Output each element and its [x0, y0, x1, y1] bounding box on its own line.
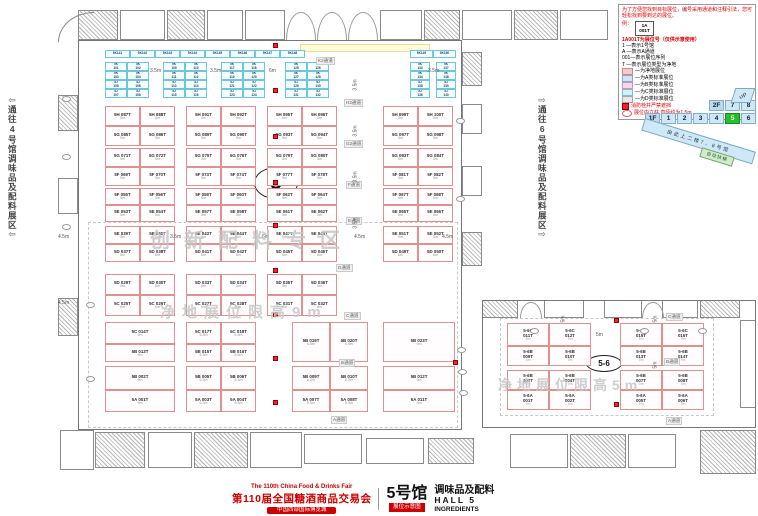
booth[interactable]: 5G 085T5m: [105, 126, 140, 146]
booth[interactable]: 5G 076T5m: [221, 148, 256, 167]
booth-id: 5J 124: [251, 90, 256, 97]
booth[interactable]: 5B 015T6.5m: [186, 344, 221, 362]
booth-id: 5K146: [238, 52, 247, 56]
booth[interactable]: 5B 006T6.5m: [221, 366, 256, 390]
booth[interactable]: 5E 062T5m: [302, 205, 337, 222]
booth[interactable]: 5K150: [433, 50, 456, 58]
booth-size: 6.5m: [235, 354, 243, 358]
booth[interactable]: 5-6C 016T7m: [662, 323, 704, 346]
booth-id: 5K144: [188, 52, 197, 56]
booth[interactable]: 5J 124: [243, 89, 265, 98]
booth[interactable]: 5J 122: [243, 80, 265, 89]
room: [424, 10, 460, 40]
booth[interactable]: 5K 128: [307, 71, 329, 80]
measure-label: 5m: [652, 316, 658, 323]
room: [570, 434, 626, 468]
aisle-label: A通道: [331, 416, 347, 424]
fair-name-en: The 110th China Food & Drinks Fair: [251, 484, 352, 490]
booth-size: 6.5m: [345, 379, 353, 383]
booth-size: 6m: [317, 254, 322, 258]
room: [194, 432, 248, 468]
booth[interactable]: 5-6C 012T7m: [549, 323, 591, 346]
pillar: [456, 118, 465, 124]
booth[interactable]: 5J 135: [410, 80, 430, 89]
booth[interactable]: 5K 111: [163, 71, 185, 80]
booth[interactable]: 5F 078T5m: [302, 167, 337, 186]
booth[interactable]: 5K 117: [221, 62, 243, 71]
booth-id: 5K 120: [251, 72, 256, 79]
booth[interactable]: 5K 125: [285, 62, 307, 71]
booth[interactable]: 5A 001T9m: [105, 390, 175, 412]
booth-size: 6m: [120, 254, 125, 258]
booth-id: 5J 135: [417, 81, 422, 88]
booth[interactable]: 5-6C 011T7m: [507, 323, 549, 346]
booth[interactable]: 5K144: [180, 50, 205, 58]
booth[interactable]: 5D 033T5m: [186, 274, 221, 295]
booth[interactable]: 5-6B 010T7m: [549, 346, 591, 366]
booth[interactable]: 5E 061T5m: [267, 205, 302, 222]
booth[interactable]: 5D 030T5m: [140, 274, 175, 295]
booth-id: 5K143: [163, 52, 172, 56]
booth-size: 5m: [398, 177, 403, 181]
booth[interactable]: 5K 133: [410, 62, 430, 71]
booth[interactable]: 5J 113: [163, 80, 185, 89]
pillar: [458, 369, 467, 375]
room: [250, 432, 302, 468]
pillar: [459, 390, 468, 396]
booth[interactable]: 5B 005T6.5m: [186, 366, 221, 390]
legend-key-label: —为净地展位: [635, 68, 665, 75]
booth-size: 6m: [398, 254, 403, 258]
booth-size: 7m: [681, 403, 686, 407]
room: [462, 166, 482, 196]
booth-size: 5m: [120, 285, 125, 289]
booth[interactable]: 5F 069T5m: [105, 167, 140, 186]
booth[interactable]: 5F 064T5m: [302, 188, 337, 205]
booth[interactable]: 5B 002T9m: [105, 366, 175, 390]
booth-size: 5m: [282, 197, 287, 201]
booth[interactable]: 5F 073T5m: [186, 167, 221, 186]
booth-size: 6.5m: [200, 402, 208, 406]
booth[interactable]: 5J 108: [127, 89, 149, 98]
booth[interactable]: 5B 010T6.5m: [330, 366, 368, 390]
hall-nav-2[interactable]: 2: [677, 113, 692, 124]
booth-size: 6.5m: [307, 343, 315, 347]
booth-size: 7m: [568, 338, 573, 342]
fire-hydrant-marker: [273, 356, 278, 361]
hall-name-en: HALL 5: [434, 496, 494, 505]
booth[interactable]: 5C 014T9m: [105, 322, 175, 344]
hall-nav-1[interactable]: 1: [661, 113, 676, 124]
room: [462, 10, 512, 40]
room: [366, 438, 424, 464]
booth[interactable]: 5F 070T5m: [140, 167, 175, 186]
booth-id: 5K149: [417, 52, 426, 56]
booth[interactable]: 5H 091T5m: [186, 106, 221, 126]
measure-label: 6m: [269, 68, 276, 74]
booth[interactable]: 5K146: [230, 50, 255, 58]
booth-id: 5K 109: [171, 63, 176, 70]
booth[interactable]: 5D 037T6m: [105, 244, 140, 262]
booth[interactable]: 5K 120: [243, 71, 265, 80]
booth[interactable]: 5J 136: [410, 89, 430, 98]
booth-size: 5m: [155, 158, 160, 162]
booth[interactable]: 5H 092T5m: [221, 106, 256, 126]
booth[interactable]: 5F 059T5m: [186, 188, 221, 205]
arrow-icon: ⇦: [8, 230, 16, 239]
booth[interactable]: 5E 053T5m: [105, 205, 140, 222]
booth[interactable]: 5K 103: [105, 71, 127, 80]
booth[interactable]: 5J 139: [436, 80, 456, 89]
booth[interactable]: 5D 049T6m: [383, 244, 418, 262]
booth[interactable]: 5J 106: [127, 80, 149, 89]
legend-color-swatch: [622, 75, 633, 82]
booth-size: 5m: [398, 236, 403, 240]
room: [304, 434, 362, 464]
booth[interactable]: 5B 020T6.5m: [330, 322, 368, 362]
fire-hydrant-marker: [273, 268, 278, 273]
legend-key-row: —为净地展位: [622, 68, 752, 75]
booth[interactable]: 5B 009T6.5m: [292, 366, 330, 390]
pillar: [86, 376, 95, 382]
booth-size: 5m: [155, 285, 160, 289]
hall-nav-3[interactable]: 3: [693, 113, 708, 124]
map-badge: 展位示意图: [389, 503, 425, 511]
booth-size: 5m: [433, 137, 438, 141]
booth-size: 6.5m: [235, 402, 243, 406]
booth[interactable]: 5A 004T6.5m: [221, 390, 256, 412]
booth-id: 5K 127: [293, 72, 298, 79]
booth[interactable]: 5K145: [205, 50, 230, 58]
booth[interactable]: 5E 058T5m: [221, 205, 256, 222]
booth[interactable]: 5K143: [155, 50, 180, 58]
measure-label: 5m: [652, 362, 658, 369]
booth[interactable]: 5H 088T5m: [140, 106, 175, 126]
room: [560, 10, 608, 40]
booth-size: 5m: [398, 137, 403, 141]
booth-size: 9m: [138, 379, 143, 383]
booth-size: 5m: [433, 177, 438, 181]
door-arc: [286, 12, 316, 40]
fire-hydrant-marker: [614, 318, 619, 323]
fire-hydrant-marker: [273, 180, 278, 185]
booth-size: 7m: [639, 359, 644, 363]
booth-id: 5K 110: [193, 63, 198, 70]
legend-key-label: —为B类标准展位: [635, 82, 673, 89]
booth[interactable]: 5F 068T5m: [418, 188, 453, 205]
booth-size: 5m: [433, 197, 438, 201]
booth[interactable]: 5C 025T6m: [105, 295, 140, 316]
divider: [378, 488, 379, 510]
booth[interactable]: 5A 008T6.5m: [330, 390, 368, 412]
booth-id: 5K 125: [293, 63, 298, 70]
booth[interactable]: 5E 065T5m: [383, 205, 418, 222]
booth-id: 5K 133: [417, 63, 422, 70]
booth-id: 5J 123: [229, 90, 234, 97]
booth[interactable]: 5K 101: [105, 62, 127, 71]
booth[interactable]: 5J 129: [285, 80, 307, 89]
booth[interactable]: 5K141: [105, 50, 130, 58]
door-arc: [348, 12, 378, 40]
room: [60, 430, 94, 470]
booth-id: 5K 118: [251, 63, 256, 70]
aisle-label: B通道: [339, 359, 355, 367]
booth[interactable]: 5J 131: [285, 89, 307, 98]
booth[interactable]: 5J 130: [307, 80, 329, 89]
booth[interactable]: 5B 023T9m: [383, 322, 455, 362]
booth[interactable]: 5-6B 008T7m: [662, 370, 704, 390]
booth[interactable]: 5H 087T5m: [105, 106, 140, 126]
booth-size: 5m: [201, 177, 206, 181]
room: [245, 10, 285, 40]
booth[interactable]: 5J 140: [436, 89, 456, 98]
room: [380, 10, 422, 40]
booth-id: 5K 103: [113, 72, 118, 79]
booth[interactable]: 5H 099T5m: [383, 106, 418, 126]
booth[interactable]: 5J 115: [163, 89, 185, 98]
hall-nav-6[interactable]: 6: [741, 113, 756, 124]
booth[interactable]: 5K148: [280, 50, 305, 58]
booth[interactable]: 5B 012T9m: [383, 366, 455, 390]
booth-size: 5m: [236, 158, 241, 162]
booth-id: 5J 121: [229, 81, 234, 88]
booth[interactable]: 5J 105: [105, 80, 127, 89]
hall-nav-4[interactable]: 4: [709, 113, 724, 124]
booth[interactable]: 5K149: [410, 50, 433, 58]
corridor-label-right: ⇨ 通往6号馆调味品及配料展区 ⇨: [534, 96, 550, 239]
booth[interactable]: 5F 081T5m: [383, 167, 418, 186]
booth-size: 5m: [236, 197, 241, 201]
measure-label: 4.5m: [442, 234, 453, 240]
booth[interactable]: 5J 114: [185, 80, 207, 89]
booth[interactable]: 5-6C 015T7m: [620, 323, 662, 346]
booth[interactable]: 5G 080T5m: [302, 148, 337, 167]
booth[interactable]: 5E 039T5m: [105, 226, 140, 244]
booth[interactable]: 5E 054T5m: [140, 205, 175, 222]
booth[interactable]: 5K 134: [410, 71, 430, 80]
booth-id: 5J 129: [293, 81, 298, 88]
booth-id: 5K141: [113, 52, 122, 56]
curved-wall: [58, 12, 94, 42]
booth[interactable]: 5H 100T5m: [418, 106, 453, 126]
booth[interactable]: 5K 109: [163, 62, 185, 71]
booth-size: 5m: [236, 117, 241, 121]
booth-size: 5m: [236, 137, 241, 141]
booth[interactable]: 5K 118: [243, 62, 265, 71]
booth[interactable]: 5K 110: [185, 62, 207, 71]
pillar: [62, 154, 71, 160]
booth-id: 5J 139: [443, 81, 448, 88]
booth[interactable]: 5J 132: [307, 89, 329, 98]
aisle-label: H2通道: [344, 99, 363, 107]
booth[interactable]: 5D 029T5m: [105, 274, 140, 295]
booth-size: 5m: [317, 158, 322, 162]
booth[interactable]: 5E 051T5m: [383, 226, 418, 244]
booth-id: 5J 115: [171, 90, 176, 97]
pillar: [698, 328, 707, 334]
booth[interactable]: 5C 018T6.5m: [221, 322, 256, 344]
room: [95, 432, 145, 468]
booth[interactable]: 5H 095T5m: [267, 106, 302, 126]
booth-size: 5m: [120, 236, 125, 240]
booth-id: 5K150: [440, 52, 449, 56]
booth-id: 5J 140: [443, 90, 448, 97]
booth-size: 5m: [317, 117, 322, 121]
booth[interactable]: 5G 098T5m: [418, 126, 453, 146]
booth[interactable]: 5B 013T9m: [105, 344, 175, 362]
booth[interactable]: 5K 119: [221, 71, 243, 80]
booth-id: 5K 101: [113, 63, 118, 70]
booth[interactable]: 5H 096T5m: [302, 106, 337, 126]
booth[interactable]: 5-6A 006T7m: [662, 390, 704, 410]
booth[interactable]: 5F 067T5m: [383, 188, 418, 205]
booth[interactable]: 5G 086T5m: [140, 126, 175, 146]
booth-size: 9m: [138, 354, 143, 358]
booth[interactable]: 5J 116: [185, 89, 207, 98]
booth[interactable]: 5G 097T5m: [383, 126, 418, 146]
corridor-label-left: ⇦ 通往4号馆调味品及配料展区 ⇦: [4, 96, 20, 239]
booth-size: 9m: [138, 334, 143, 338]
booth-size: 7m: [568, 403, 573, 407]
legend-color-swatch: [622, 68, 633, 75]
booth-size: 6.5m: [307, 402, 315, 406]
fire-hydrant-marker: [273, 134, 278, 139]
booth-size: 5m: [201, 285, 206, 289]
room: [514, 10, 558, 40]
legend-key-row: —为B类标准展位: [622, 82, 752, 89]
booth[interactable]: 5D 050T6m: [418, 244, 453, 262]
room: [462, 232, 482, 266]
booth[interactable]: 5B 019T6.5m: [292, 322, 330, 362]
watermark: 创新配料专区: [150, 224, 354, 253]
booth-id: 5K 137: [443, 63, 448, 70]
booth[interactable]: 5J 107: [105, 89, 127, 98]
measure-label: 4.5m: [58, 300, 69, 306]
booth-size: 5m: [317, 214, 322, 218]
booth-size: 5m: [398, 117, 403, 121]
booth[interactable]: 5F 082T5m: [418, 167, 453, 186]
booth-size: 5m: [120, 197, 125, 201]
booth-size: 5m: [398, 158, 403, 162]
booth-size: 5m: [282, 285, 287, 289]
room: [462, 52, 482, 86]
booth-size: 9m: [138, 402, 143, 406]
booth[interactable]: 5G 072T5m: [140, 148, 175, 167]
measure-label: 4.5m: [354, 234, 365, 240]
booth-size: 6m: [201, 254, 206, 258]
booth[interactable]: 5G 075T5m: [186, 148, 221, 167]
booth[interactable]: 5F 060T5m: [221, 188, 256, 205]
legend-key-label: —为A类标准展位: [635, 75, 673, 82]
booth[interactable]: 5F 074T5m: [221, 167, 256, 186]
room: [700, 430, 756, 474]
booth[interactable]: 5G 094T5m: [302, 126, 337, 146]
booth-size: 5m: [317, 285, 322, 289]
hall-nav-5[interactable]: 5: [725, 113, 740, 124]
booth-id: 5K 104: [135, 72, 140, 79]
measure-label: 5m: [560, 316, 566, 323]
booth-size: 5m: [398, 214, 403, 218]
booth[interactable]: 5D 036T5m: [302, 274, 337, 295]
booth[interactable]: 5G 084T5m: [418, 148, 453, 167]
booth[interactable]: 5K 127: [285, 71, 307, 80]
booth-size: 5m: [155, 197, 160, 201]
booth[interactable]: 5K 102: [127, 62, 149, 71]
booth-size: 5m: [155, 117, 160, 121]
pillar: [530, 328, 539, 334]
booth[interactable]: 5G 089T5m: [186, 126, 221, 146]
booth[interactable]: 5E 057T5m: [186, 205, 221, 222]
room: [462, 104, 482, 134]
booth-id: 5J 122: [251, 81, 256, 88]
booth-size: 5m: [282, 177, 287, 181]
ramp-banner: 由此上二楼7、8号馆: [641, 118, 756, 164]
booth[interactable]: 5E 066T5m: [418, 205, 453, 222]
booth-size: 9m: [417, 343, 422, 347]
aisle-label: C通道: [666, 313, 683, 321]
booth-size: 5m: [433, 214, 438, 218]
legend-color-swatch: [622, 82, 633, 89]
booth[interactable]: 5F 055T5m: [105, 188, 140, 205]
room: [58, 178, 78, 214]
floor-label-2F: 2F: [709, 100, 724, 111]
booth-size: 5m: [120, 177, 125, 181]
booth-size: 5m: [236, 285, 241, 289]
legend-example-label: 例：: [622, 21, 632, 27]
booth[interactable]: 5C 017T6.5m: [186, 322, 221, 344]
booth[interactable]: 5K 112: [185, 71, 207, 80]
pillar: [640, 328, 649, 334]
booth-size: 7m: [639, 338, 644, 342]
booth-size: 6.5m: [200, 354, 208, 358]
booth[interactable]: 5K 104: [127, 71, 149, 80]
booth[interactable]: 5B 016T6.5m: [221, 344, 256, 362]
booth[interactable]: 5D 035T5m: [267, 274, 302, 295]
booth[interactable]: 5F 063T5m: [267, 188, 302, 205]
booth[interactable]: 5G 071T5m: [105, 148, 140, 167]
booth-size: 5m: [433, 236, 438, 240]
booth[interactable]: 5G 083T5m: [383, 148, 418, 167]
booth-size: 5m: [201, 197, 206, 201]
booth[interactable]: 5J 121: [221, 80, 243, 89]
booth-size: 5m: [398, 197, 403, 201]
booth[interactable]: 5K142: [130, 50, 155, 58]
booth[interactable]: 5A 003T6.5m: [186, 390, 221, 412]
arrow-icon: ⇨: [538, 230, 546, 239]
booth-id: 5K 111: [172, 72, 177, 79]
booth-size: 7m: [681, 383, 686, 387]
booth[interactable]: 5A 011T9m: [383, 390, 455, 412]
measure-label: 4.5m: [58, 234, 69, 240]
booth-id: 5J 107: [113, 90, 118, 97]
booth[interactable]: 5-6B 009T7m: [507, 346, 549, 366]
booth[interactable]: 5G 079T5m: [267, 148, 302, 167]
booth[interactable]: 5F 056T5m: [140, 188, 175, 205]
watermark: 净地展位限高5m: [498, 375, 642, 395]
booth-size: 6.5m: [235, 379, 243, 383]
booth-size: 6.5m: [345, 402, 353, 406]
booth[interactable]: 5D 034T5m: [221, 274, 256, 295]
booth-size: 5m: [120, 117, 125, 121]
room: [510, 434, 568, 468]
booth-size: 5m: [120, 158, 125, 162]
legend-key-row: —为A类标准展位: [622, 75, 752, 82]
booth-id: 5J 105: [113, 81, 118, 88]
booth[interactable]: 5G 090T5m: [221, 126, 256, 146]
booth[interactable]: 5J 123: [221, 89, 243, 98]
booth[interactable]: 5A 007T6.5m: [292, 390, 330, 412]
booth[interactable]: 5K147: [255, 50, 280, 58]
